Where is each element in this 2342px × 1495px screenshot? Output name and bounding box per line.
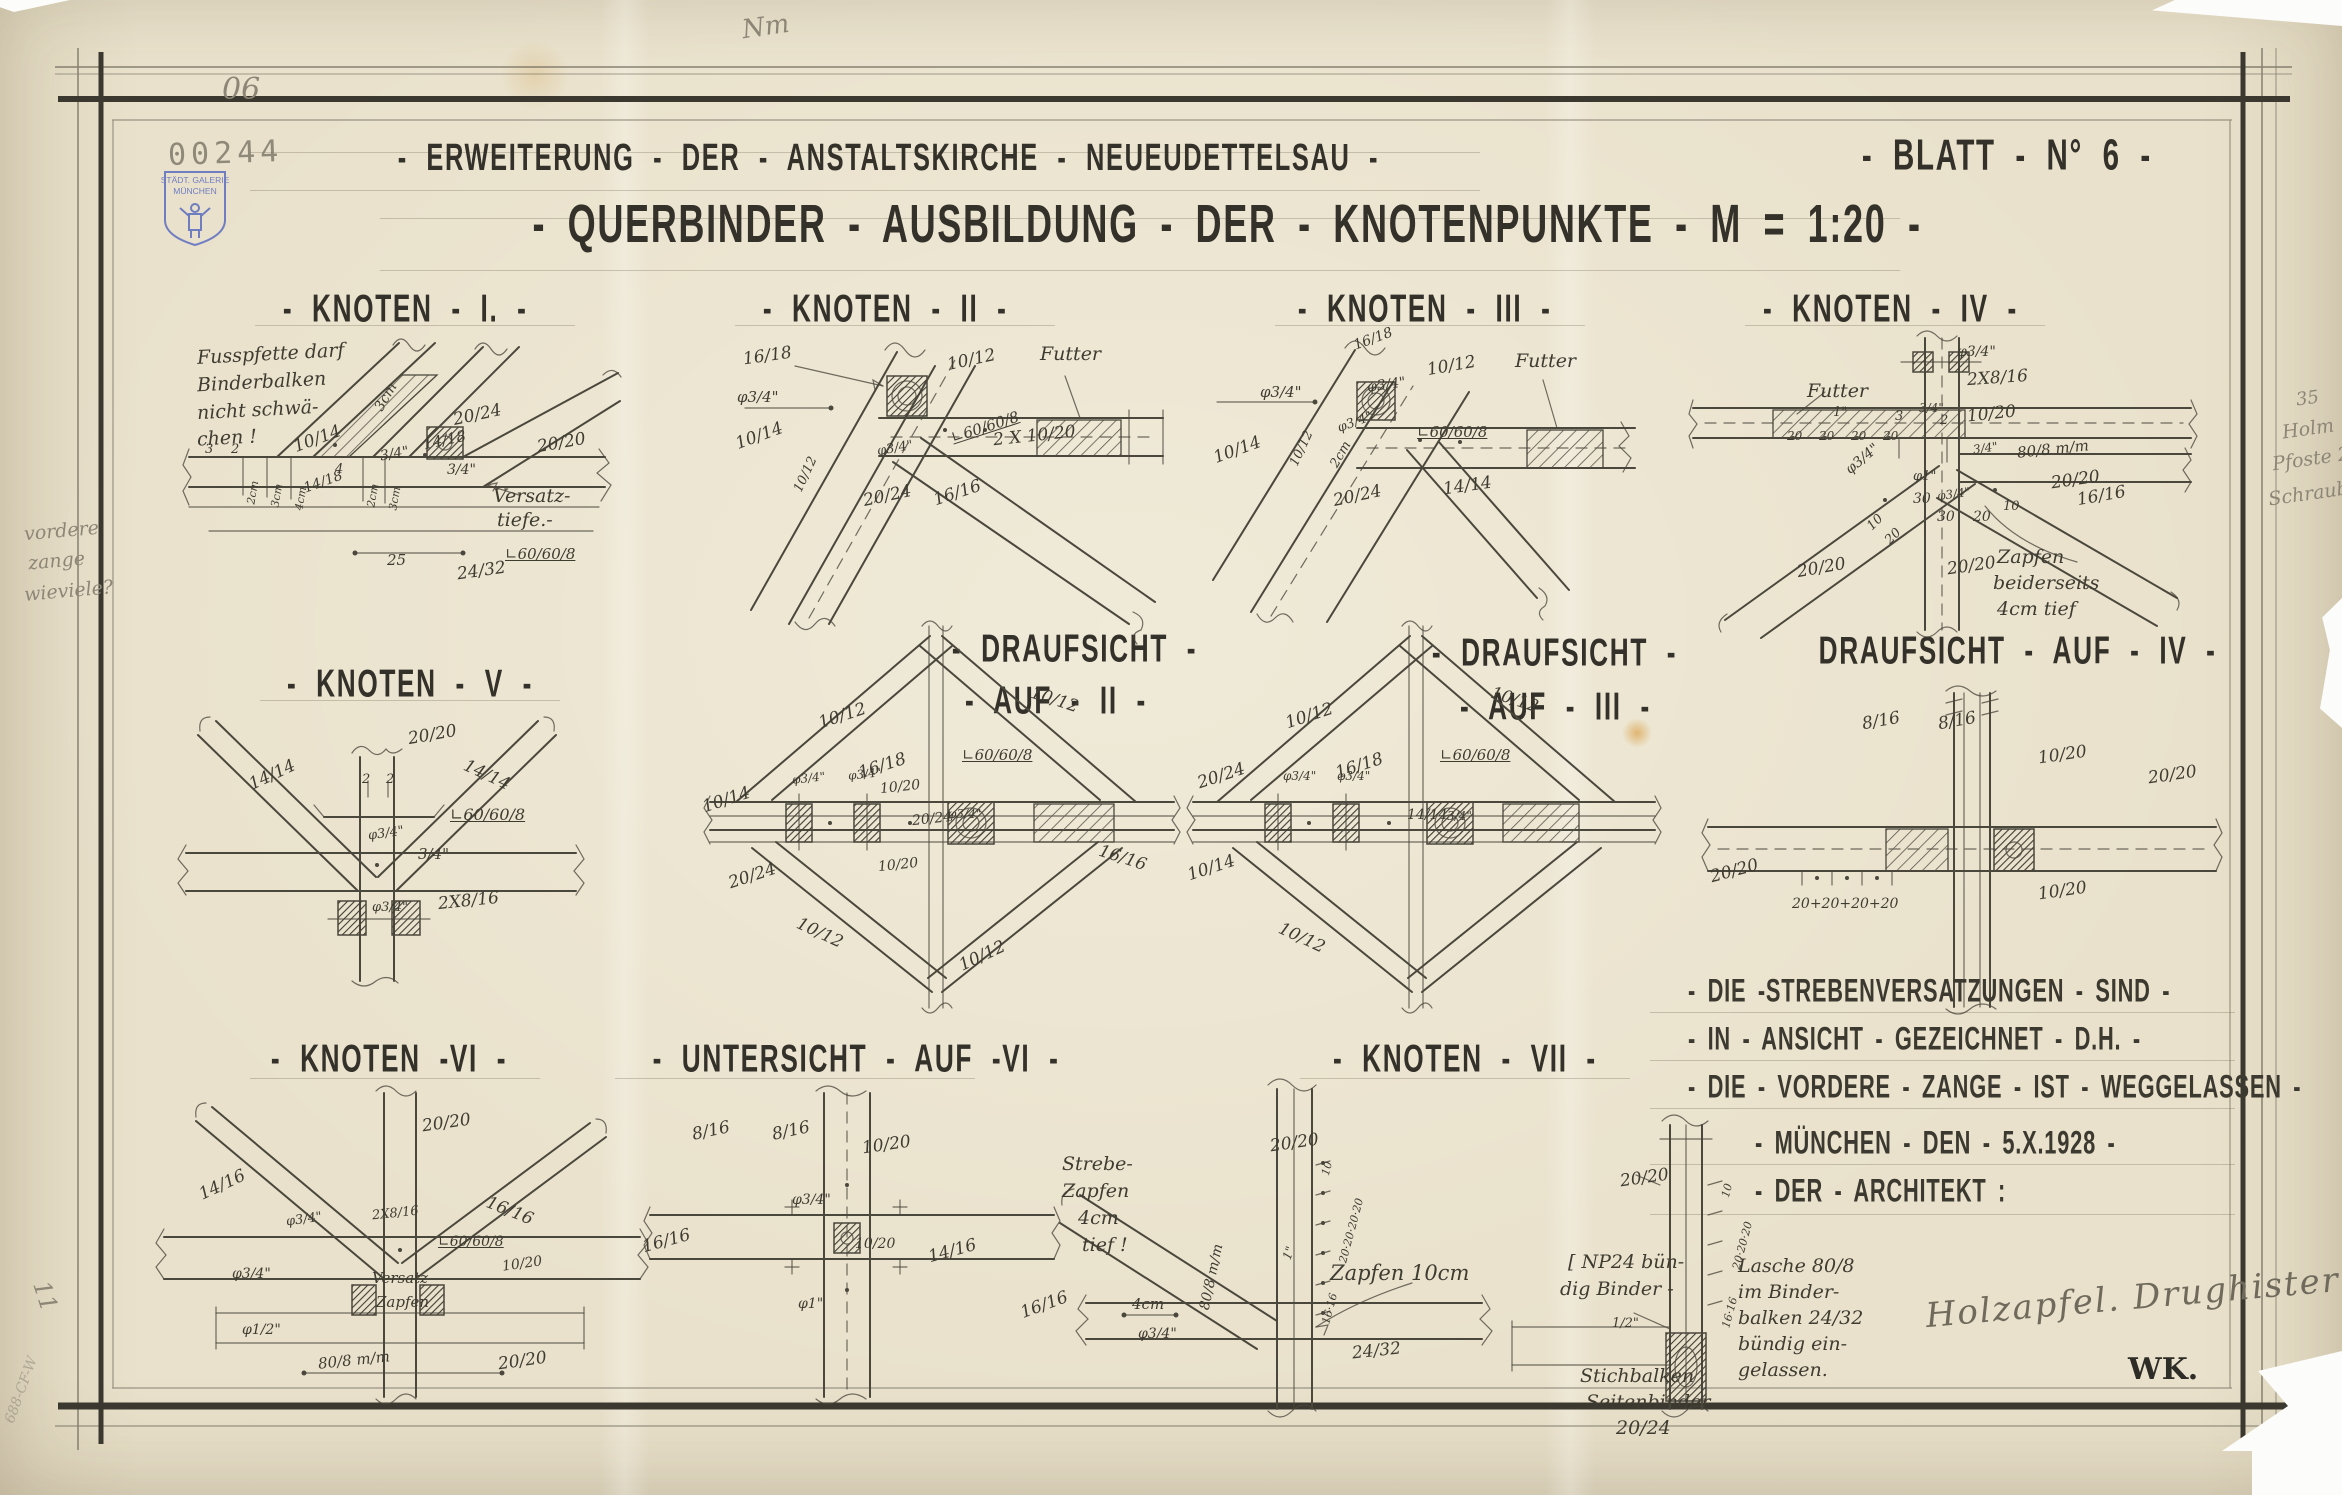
annotation-label: ∟60/60/8 [1440,748,1510,763]
margin-note-left-1: vordere [23,517,100,545]
annotation-label: φ3/4" [791,770,825,785]
annotation-label: balken 24/32 [1738,1309,1863,1328]
annotation-label: 20+20+20+20 [1792,897,1898,911]
page-code-pencil: 06 [222,72,260,107]
guide-line [250,190,1480,191]
note-line-5: - DER - ARCHITEKT : [1755,1175,2077,1207]
annotation-label: 3/4" [418,847,449,862]
annotation-label: ∟60/60/8 [438,1235,504,1249]
annotation-label: 10/20 [877,856,919,874]
annotation-label: ∟60/60/8 [962,748,1032,763]
annotation-label: φ3/4" [1283,770,1316,782]
paper-tear [2222,1351,2342,1451]
annotation-label: gelassen. [1738,1361,1828,1380]
annotation-label: im Binder- [1738,1283,1839,1302]
note-line-1: - DIE -STREBENVERSATZUNGEN - SIND - [1688,975,2306,1007]
paper-tear [2320,598,2342,728]
annotation-label: φ3/4" [1260,385,1302,400]
sheet-subtitle: - QUERBINDER - AUSBILDUNG - DER - KNOTEN… [380,200,1890,250]
knoten-vi-drawing [150,1085,655,1405]
annotation-label: 20 [1787,430,1802,442]
annotation-label: 10/20 [879,778,921,796]
municipal-gallery-stamp: STÄDT. GALERIE MÜNCHEN [160,168,230,248]
annotation-label: 20 [1819,430,1834,442]
annotation-label: Versatz [372,1271,428,1286]
annotation-label: φ3/4" [948,808,981,820]
sheet-title: - ERWEITERUNG - DER - ANSTALTSKIRCHE - N… [290,140,1470,176]
heading-knoten-iii: - KNOTEN - III - [1270,290,1570,327]
panel-knoten-v: 20/2014/1414/1422∟60/60/8φ3/4"3/4"2X8/16… [150,695,605,985]
annotation-label: φ1" [1913,470,1936,483]
annotation-label: 20 [1851,430,1866,442]
margin-note-left-3: wieviele? [23,576,114,606]
edge-code: 688-CF-W [2,1355,41,1426]
annotation-label: Futter [1807,382,1868,401]
guide-line [1650,1060,2235,1061]
annotation-label: Versatz- [493,487,570,506]
sheet-number: - BLATT - N° 6 - [1830,134,2160,176]
annotation-label: φ3/4" [372,901,408,914]
drawing-sheet: 06 Nm 00244 STÄDT. GALERIE MÜNCHEN - ERW… [0,0,2342,1495]
annotation-label: Futter [1515,352,1576,371]
annotation-label: ∟60/60/8 [450,807,525,823]
stamp-text-2: MÜNCHEN [173,186,216,196]
guide-line [380,270,1900,271]
annotation-label: 3/4" [1447,810,1472,822]
annotation-label: φ1/2" [242,1323,281,1337]
annotation-label: φ1" [798,1297,823,1311]
annotation-label: [ NP24 bün- [1568,1253,1684,1272]
annotation-label: Seitenbinder [1586,1393,1710,1412]
annotation-label: 30 [1913,492,1931,506]
panel-knoten-ii: 16/1810/12Futterφ3/4"10/1410/1220/24∟60/… [735,330,1170,630]
annotation-label: 4cm [1078,1209,1119,1228]
annotation-label: Zapfen [376,1295,429,1310]
annotation-label: φ3/4" [1138,1327,1177,1341]
panel-untersicht-vi: 8/168/1610/20φ3/4"16/1610/2014/16φ1" [640,1085,1065,1405]
annotation-label: Strebe- [1062,1155,1133,1174]
panel-knoten-vi: 20/2014/1616/16φ3/4"2X8/16∟60/60/810/20φ… [150,1085,655,1405]
annotation-label: 2 [386,773,394,786]
pencil-mark-bottom-left: 11 [27,1277,63,1315]
annotation-label: 4cm [1132,1297,1164,1312]
annotation-label: φ3/4" [232,1267,271,1281]
annotation-label: 20/24 [911,810,953,828]
draftsman-monogram: WK. [2128,1352,2198,1387]
note-line-3: - DIE - VORDERE - ZANGE - IST - WEGGELAS… [1688,1071,2342,1103]
foxing-stain [500,40,570,110]
annotation-label: φ3/4" [1337,770,1370,782]
annotation-label: 2 [1940,414,1948,427]
annotation-label: 4 [335,463,343,476]
annotation-label: ∟60/60/8 [1417,425,1487,440]
paper-tear [0,0,70,12]
panel-knoten-iii: 16/1810/12Futterφ3/4"φ3/4"φ3/4"2cm10/141… [1205,330,1650,630]
margin-note-right-3: Schrauben 3 [2267,472,2342,511]
annotation-label: 2X8/16 [1966,368,2028,389]
architect-signature: Holzapfel. Drughister [1924,1260,2341,1336]
margin-note-right-small: 35 [2295,387,2321,411]
annotation-label: φ3/4" [1957,345,1996,359]
annotation-label: φ3/4" [847,766,881,781]
panel-knoten-i: Fusspfette darfBinderbalkennicht schwä-c… [175,335,620,605]
annotation-label: 1" [1833,406,1847,419]
annotation-label: 3/4" [1972,440,1998,455]
annotation-label: 20 [1973,510,1991,524]
annotation-label: Stichbalken [1580,1367,1694,1386]
annotation-label: 2 [231,443,239,456]
annotation-label: bündig ein- [1738,1335,1847,1354]
annotation-label: φ3/4" [737,390,779,405]
stamp-text-1: STÄDT. GALERIE [161,175,230,185]
heading-knoten-ii: - KNOTEN - II - [725,290,1045,327]
annotation-label: Zapfen [1997,548,2064,567]
paper-tear [2252,1447,2342,1495]
annotation-label: 1/2" [1612,1317,1639,1330]
note-line-4: - MÜNCHEN - DEN - 5.X.1928 - [1755,1127,2217,1159]
panel-draufsicht-iii: 10/1210/1216/18∟60/60/820/24φ3/4"φ3/4"14… [1185,620,1665,1015]
annotation-label: 10/20 [855,1237,895,1251]
heading-knoten-vii: - KNOTEN - VII - [1295,1040,1635,1077]
heading-knoten-vi: - KNOTEN -VI - [245,1040,525,1077]
annotation-label: 10 [2003,500,2020,513]
annotation-label: 14/14 [1407,808,1447,822]
annotation-label: 3/4" [447,463,476,477]
annotation-label: dig Binder - [1560,1280,1674,1299]
annotation-label: Futter [1040,345,1101,364]
annotation-label: 20/24 [1616,1419,1671,1438]
annotation-label: 20 [1883,430,1898,442]
margin-note-right-1: Holm [2281,414,2336,443]
pencil-note-top: Nm [740,9,791,45]
margin-note-left-2: zange [27,548,86,575]
annotation-label: 10 [1720,1182,1734,1198]
annotation-label: 3 [205,443,213,456]
annotation-label: tiefe.- [497,511,553,530]
annotation-label: φ3/4" [792,1193,831,1207]
heading-untersicht-vi: - UNTERSICHT - AUF -VI - [608,1040,978,1077]
paper-tear [2152,0,2342,26]
panel-knoten-iv: φ3/4"2X8/16Futter1"33/4"210/20202020203/… [1685,330,2200,640]
annotation-label: 2 [362,773,370,786]
panel-draufsicht-iv: 8/168/1610/2020/2020/2020+20+20+2010/20 [1700,685,2225,1015]
heading-knoten-iv: - KNOTEN - IV - [1735,290,2035,327]
note-line-2: - IN - ANSICHT - GEZEICHNET - D.H. - [1688,1023,2269,1055]
annotation-label: Lasche 80/8 [1738,1257,1855,1276]
draufsicht-iv-drawing [1700,685,2225,1015]
annotation-label: 3 [1895,410,1903,423]
annotation-label: 10 [1320,1160,1334,1176]
heading-knoten-i: - KNOTEN - I. - [245,290,565,327]
annotation-label: beiderseits [1993,574,2099,593]
annotation-label: Zapfen 10cm [1330,1263,1469,1284]
muenchner-kindl-icon [180,204,210,238]
margin-note-right-2: Pfoste 2 [2271,443,2342,476]
panel-draufsicht-ii: 10/1210/1216/18∟60/60/8φ3/4"φ3/4"10/2010… [700,620,1185,1015]
annotation-label: 25 [387,553,406,568]
annotation-label: 4cm tief [1997,600,2076,619]
annotation-label: 30 [1937,510,1955,524]
annotation-label: ∟60/60/8 [505,547,575,562]
annotation-label: tief ! [1082,1236,1128,1255]
annotation-label: Zapfen [1062,1182,1129,1201]
